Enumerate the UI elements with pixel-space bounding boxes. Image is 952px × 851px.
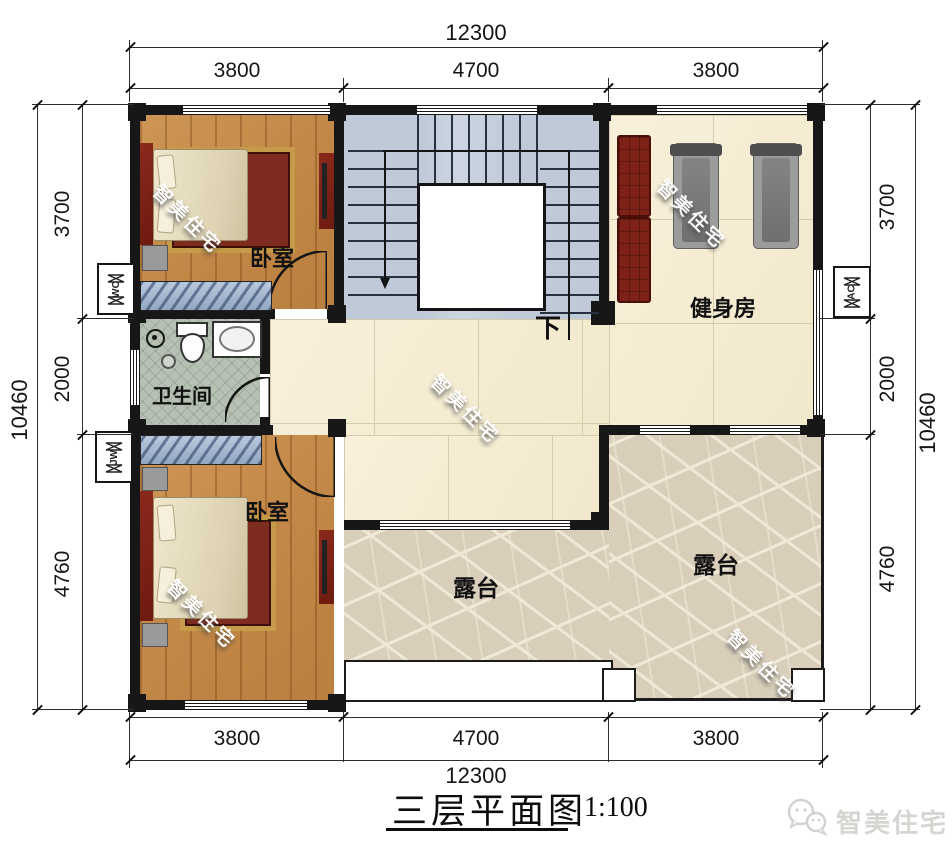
sofa xyxy=(617,135,651,217)
shaft-label: AC xyxy=(846,285,857,299)
terrace-mid-label: 露台 xyxy=(453,569,499,603)
window-gym xyxy=(657,105,807,115)
floor-plan: 下 卧室 健身房 卫生间 xyxy=(130,105,823,710)
wall-mid-strip xyxy=(130,425,273,435)
dim-right-seg1: 3700 xyxy=(876,157,900,257)
window-terrace-north-2 xyxy=(730,425,800,435)
railing-post xyxy=(602,668,636,702)
stair-railing-top xyxy=(383,150,570,152)
column xyxy=(328,419,346,437)
title-underline xyxy=(386,828,568,831)
dim-bottom-seg3: 3800 xyxy=(646,727,786,751)
shaft-label: WC xyxy=(110,281,121,298)
bed-headboard xyxy=(140,491,153,621)
column xyxy=(128,103,146,121)
wardrobe-bedroom-top xyxy=(140,281,272,311)
terrace-mid-parapet xyxy=(344,660,613,702)
column xyxy=(807,103,825,121)
treadmill xyxy=(753,143,799,249)
window-hall-south xyxy=(380,520,570,530)
wall-bedroom-stair xyxy=(334,105,344,319)
stair-arrow-down-icon xyxy=(380,278,390,289)
dim-left-seg3: 4760 xyxy=(51,524,75,624)
window-gym-east xyxy=(813,270,823,415)
shower-dot xyxy=(152,335,157,340)
dim-top-seg1: 3800 xyxy=(167,59,307,83)
dim-bottom-seg1: 3800 xyxy=(167,727,307,751)
hall-extension-floor xyxy=(344,435,599,520)
sheet-title: 三层平面图 xyxy=(392,783,587,834)
nightstand xyxy=(142,245,168,271)
stair-flight-top xyxy=(417,115,540,183)
stair-direction-line xyxy=(384,152,386,280)
gym-label: 健身房 xyxy=(690,291,756,323)
sheet-scale: 1:100 xyxy=(584,792,648,824)
treadmill-console xyxy=(750,144,802,156)
dim-right-seg2: 2000 xyxy=(876,329,900,429)
brand-logo-text: 智美住宅 xyxy=(836,803,948,840)
dim-left-seg2: 2000 xyxy=(51,329,75,429)
column xyxy=(593,103,611,121)
dim-top-total: 12300 xyxy=(406,20,546,46)
tv xyxy=(322,163,327,219)
dim-right-seg3: 4760 xyxy=(876,519,900,619)
column xyxy=(328,103,346,121)
tv xyxy=(322,540,327,594)
column xyxy=(328,694,346,712)
stair-down-label: 下 xyxy=(535,308,561,345)
treadmill-console xyxy=(670,144,722,156)
terrace-right-label: 露台 xyxy=(693,546,739,580)
window-stairwell xyxy=(417,105,537,115)
shaft-box-jw: JW xyxy=(95,431,133,483)
stair-void xyxy=(417,183,546,311)
dim-top-seg3: 3800 xyxy=(646,59,786,83)
shaft-box-wc: WC xyxy=(97,263,135,315)
nightstand xyxy=(142,623,168,647)
sink-basin xyxy=(219,326,255,352)
shaft-hatch-icon xyxy=(843,277,861,286)
window-bedroom-bottom xyxy=(185,700,307,710)
stair-railing-right xyxy=(568,150,570,340)
treadmill-belt xyxy=(762,158,790,242)
column xyxy=(591,512,609,530)
shaft-label: JW xyxy=(109,450,120,465)
wall-west xyxy=(130,105,140,710)
shaft-hatch-icon xyxy=(843,299,861,308)
pillow xyxy=(156,504,176,541)
bedroom-top-label: 卧室 xyxy=(250,241,294,273)
shaft-box-ac: AC xyxy=(833,266,871,318)
sofa xyxy=(617,217,651,303)
wall-stair-gym xyxy=(599,105,609,319)
window-terrace-north-1 xyxy=(640,425,690,435)
window-bedroom-top xyxy=(183,105,330,115)
dim-right-total: 10460 xyxy=(915,373,941,473)
wardrobe-bedroom-bottom xyxy=(140,435,262,465)
column xyxy=(328,305,346,323)
dim-left-seg1: 3700 xyxy=(51,164,75,264)
bedroom-bottom-label: 卧室 xyxy=(245,495,289,527)
dim-bottom-seg2: 4700 xyxy=(406,727,546,751)
dim-top-seg2: 4700 xyxy=(406,59,546,83)
nightstand xyxy=(142,467,168,491)
door-bathroom xyxy=(225,377,270,422)
door-bedroom-bottom xyxy=(275,437,335,497)
bathroom-label: 卫生间 xyxy=(152,380,212,409)
window-bathroom-west xyxy=(130,350,140,405)
brand-logo-icon xyxy=(784,797,830,837)
dim-left-total: 10460 xyxy=(7,360,33,460)
